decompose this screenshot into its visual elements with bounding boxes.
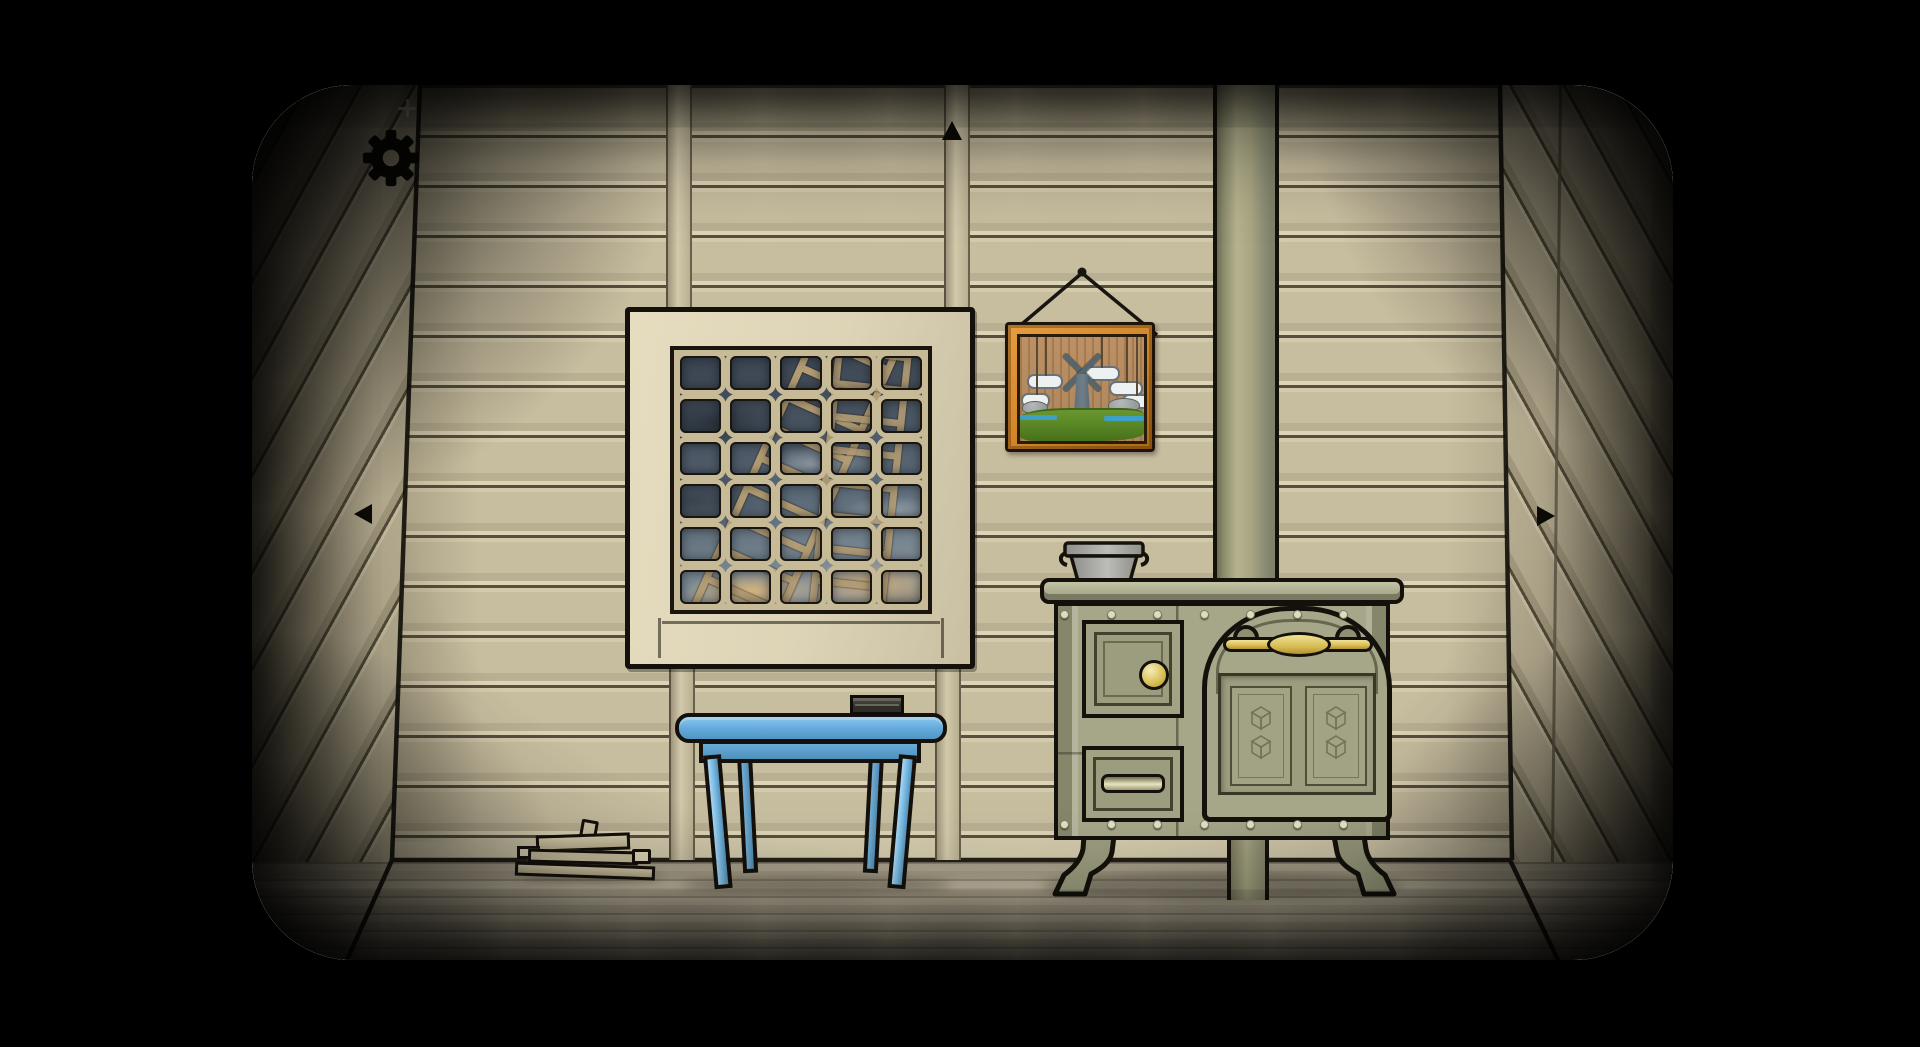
water bbox=[1020, 415, 1057, 420]
table-leg bbox=[703, 754, 733, 889]
grass bbox=[1020, 408, 1144, 441]
up-arrow-icon bbox=[942, 121, 962, 140]
table-apron bbox=[699, 740, 921, 763]
pane bbox=[780, 527, 821, 561]
wall-batten bbox=[666, 85, 692, 309]
pane bbox=[730, 484, 771, 518]
pane bbox=[831, 442, 872, 476]
pane bbox=[831, 484, 872, 518]
settings-button[interactable] bbox=[360, 127, 422, 193]
gear-icon bbox=[360, 127, 422, 189]
window[interactable] bbox=[625, 307, 975, 669]
pane bbox=[680, 570, 721, 604]
rivet bbox=[1293, 820, 1302, 829]
log bbox=[632, 849, 651, 864]
pane bbox=[730, 356, 771, 390]
pane bbox=[680, 442, 721, 476]
water bbox=[1104, 416, 1144, 421]
pane bbox=[680, 484, 721, 518]
rivet-row-top bbox=[1060, 610, 1348, 618]
pane bbox=[881, 484, 922, 518]
right-arrow-icon bbox=[1537, 506, 1555, 526]
game-stage bbox=[0, 0, 1920, 1047]
rivet-row-bottom bbox=[1060, 820, 1348, 828]
pane bbox=[831, 570, 872, 604]
window-opening bbox=[670, 346, 932, 614]
window-panes bbox=[674, 350, 928, 610]
rivet bbox=[1200, 610, 1209, 619]
stove-small-door[interactable] bbox=[1082, 620, 1184, 718]
oven-recess bbox=[1218, 673, 1376, 795]
picture-cloud bbox=[1027, 374, 1063, 389]
rivet bbox=[1200, 820, 1209, 829]
stove-drawer[interactable] bbox=[1082, 746, 1184, 822]
rivet bbox=[1060, 610, 1069, 619]
chimney-pipe bbox=[1213, 85, 1279, 585]
frame-seam bbox=[658, 618, 661, 658]
picture-scene bbox=[1017, 334, 1147, 444]
rivet bbox=[1107, 610, 1116, 619]
oven-panel bbox=[1230, 686, 1292, 786]
pane bbox=[881, 527, 922, 561]
pane bbox=[831, 356, 872, 390]
rivet bbox=[1339, 820, 1348, 829]
game-viewport bbox=[252, 85, 1673, 960]
panel-line bbox=[1238, 694, 1284, 778]
oven-door[interactable] bbox=[1202, 606, 1392, 822]
nav-right-button[interactable] bbox=[1531, 500, 1561, 532]
pane bbox=[680, 356, 721, 390]
matchbox[interactable] bbox=[850, 695, 904, 715]
panel-line bbox=[1313, 694, 1359, 778]
pane bbox=[680, 527, 721, 561]
framed-picture[interactable] bbox=[1005, 322, 1155, 452]
stove-knob[interactable] bbox=[1139, 660, 1169, 690]
oven-panel bbox=[1305, 686, 1367, 786]
pane bbox=[881, 399, 922, 433]
rivet bbox=[1153, 610, 1162, 619]
pane bbox=[780, 356, 821, 390]
pane bbox=[780, 570, 821, 604]
rivet bbox=[1246, 610, 1255, 619]
left-arrow-icon bbox=[354, 504, 372, 524]
pane bbox=[780, 442, 821, 476]
pane bbox=[780, 484, 821, 518]
nav-left-button[interactable] bbox=[348, 498, 378, 530]
wood-stove[interactable] bbox=[1038, 578, 1410, 898]
table-leg bbox=[863, 755, 884, 874]
pane bbox=[680, 399, 721, 433]
drawer-handle[interactable] bbox=[1101, 774, 1165, 793]
pane bbox=[730, 527, 771, 561]
table-leg bbox=[887, 754, 917, 889]
rivet bbox=[1153, 820, 1162, 829]
stove-legs bbox=[1038, 834, 1410, 898]
rivet bbox=[1107, 820, 1116, 829]
table-top bbox=[675, 713, 947, 743]
pane bbox=[730, 399, 771, 433]
pane bbox=[881, 442, 922, 476]
rivet bbox=[1060, 820, 1069, 829]
table bbox=[675, 713, 947, 891]
pane bbox=[881, 356, 922, 390]
nav-up-button[interactable] bbox=[936, 115, 968, 146]
frame-seam bbox=[941, 618, 944, 658]
rivet bbox=[1246, 820, 1255, 829]
pane bbox=[730, 442, 771, 476]
pane bbox=[881, 570, 922, 604]
pane bbox=[730, 570, 771, 604]
pane bbox=[831, 399, 872, 433]
stove-top-rail bbox=[1040, 578, 1404, 604]
right-wall bbox=[1498, 85, 1673, 862]
floor bbox=[252, 862, 1673, 960]
pane bbox=[831, 527, 872, 561]
rivet bbox=[1339, 610, 1348, 619]
pane bbox=[780, 399, 821, 433]
rivet bbox=[1293, 610, 1302, 619]
frame-seam bbox=[662, 621, 940, 624]
firewood-pile[interactable] bbox=[514, 820, 664, 884]
table-leg bbox=[737, 755, 758, 874]
wall-seam-line bbox=[1551, 85, 1562, 862]
oven-handle-center bbox=[1267, 632, 1331, 657]
